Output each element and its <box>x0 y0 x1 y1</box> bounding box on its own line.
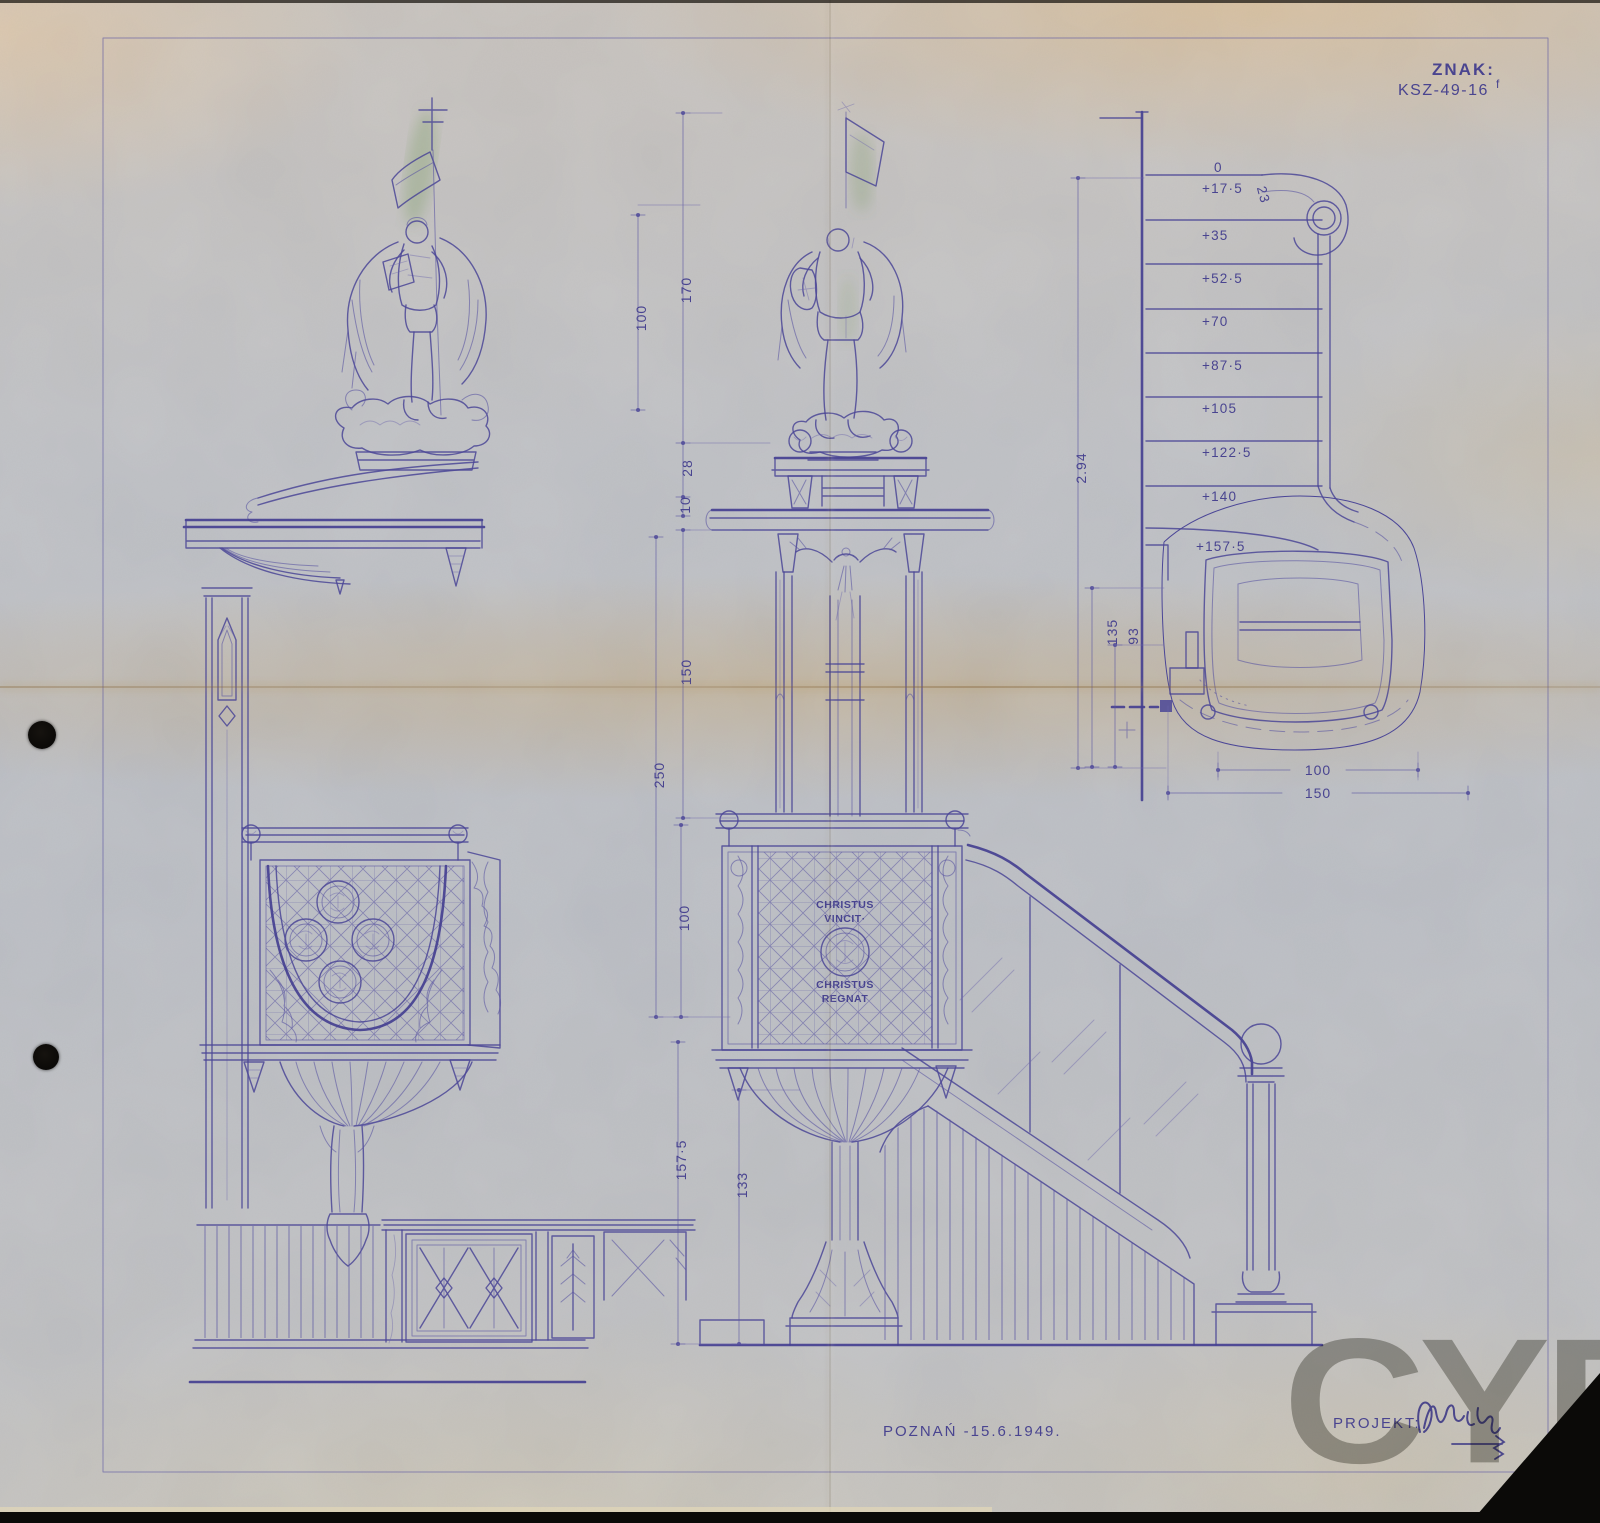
scan-edge-top <box>0 0 1600 3</box>
dim-label: 10 <box>677 496 693 514</box>
dim-label: 135 <box>1104 619 1120 645</box>
drawing-canvas: CHRISTUS VINCIT· CHRISTUS REGNAT <box>0 0 1600 1523</box>
mark-code: KSZ-49-16 <box>1398 82 1489 99</box>
level-label: +122·5 <box>1202 445 1252 460</box>
horizontal-fold-crease <box>0 686 1600 688</box>
green-ink-smudge <box>839 276 857 344</box>
blueprint-sheet: CHRISTUS VINCIT· CHRISTUS REGNAT <box>0 0 1600 1523</box>
dim-label: 100 <box>676 905 692 931</box>
level-label: +87·5 <box>1202 358 1243 373</box>
punch-hole <box>33 1044 59 1070</box>
dim-label: 100 <box>1305 762 1331 778</box>
level-label: 0 <box>1214 160 1223 175</box>
level-label: +35 <box>1202 228 1229 243</box>
level-label: +105 <box>1202 401 1237 416</box>
dim-label: 170 <box>678 277 694 303</box>
dim-label: 93 <box>1125 627 1141 645</box>
level-label: +17·5 <box>1202 181 1243 196</box>
mark-label: ZNAK: <box>1432 60 1495 79</box>
inscription-line: CHRISTUS <box>816 979 874 991</box>
vertical-fold-crease <box>829 0 831 1523</box>
dim-label: 157·5 <box>673 1140 689 1181</box>
green-ink-smudge <box>850 132 874 212</box>
level-label: +157·5 <box>1196 539 1246 554</box>
punch-hole <box>28 721 56 749</box>
dim-label: 250 <box>651 762 667 788</box>
level-label: +52·5 <box>1202 271 1243 286</box>
place-date: POZNAŃ -15.6.1949. <box>883 1423 1062 1440</box>
dim-label: 133 <box>734 1172 750 1198</box>
level-label: +140 <box>1202 489 1237 504</box>
level-label: +70 <box>1202 314 1229 329</box>
scan-edge-bottom <box>0 1512 1600 1523</box>
dim-label: 28 <box>679 459 695 477</box>
total-rise-label: 2.94 <box>1073 452 1089 483</box>
dim-label: 150 <box>1305 785 1331 801</box>
dim-label: 100 <box>633 305 649 331</box>
inscription-line: CHRISTUS <box>816 899 874 911</box>
dim-label: 150 <box>678 659 694 685</box>
